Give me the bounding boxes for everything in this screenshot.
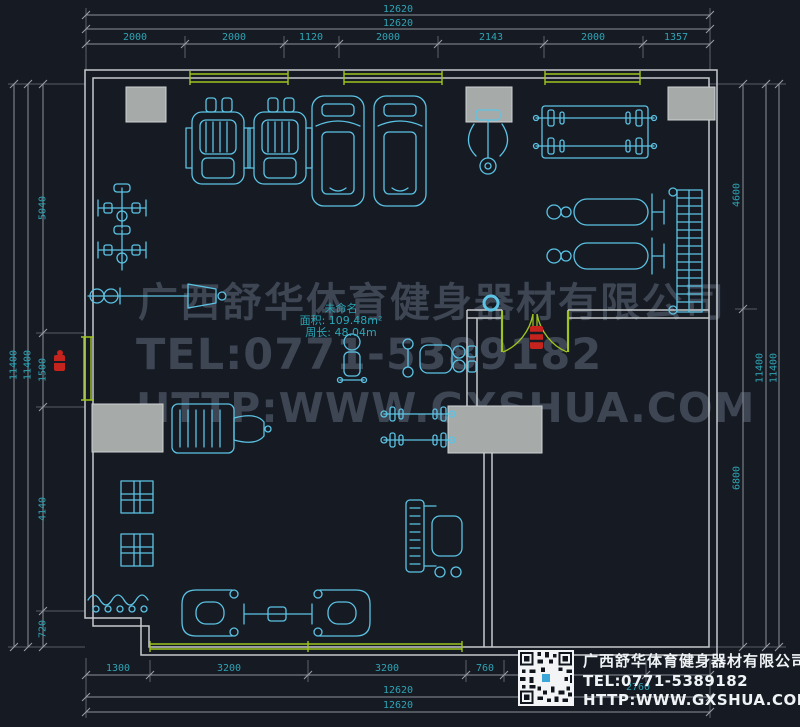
dim-right-total-outer: 11400 [769,338,780,398]
door-closer-icon [530,326,543,349]
cable-machine-icon [98,226,146,270]
dim-top-seg: 2000 [376,32,400,43]
window-symbol [121,534,153,566]
cad-canvas: 广西舒华体育健身器材有限公司 TEL:0771-5389182 HTTP:WWW… [0,0,800,727]
dim-left-total-outer: 11400 [9,335,20,395]
logo-card: 广西舒华体育健身器材有限公司 TEL:0771-5389182 HTTP:WWW… [518,650,800,709]
press-machine-icon [172,404,271,453]
treadmill-icon [374,96,426,206]
dumbbell-bench-icon [547,194,664,230]
dim-left-seg: 1500 [38,340,49,400]
dim-bottom-total-inner: 12620 [383,685,413,696]
massage-chair-icon [248,98,312,184]
dim-top-total-inner: 12620 [383,18,413,29]
dim-top-seg: 2000 [123,32,147,43]
dim-right-seg: 6800 [732,448,743,508]
dim-bottom-seg: 3200 [375,663,399,674]
curl-rack-icon [88,595,148,612]
cable-machine-icon [98,184,146,228]
dumbbell-bench-icon [547,238,664,274]
bench-icon [182,590,238,636]
column-circle-icon [484,296,498,310]
dim-bottom-seg: 3200 [217,663,241,674]
barbell-rack-icon [381,407,455,421]
squat-machine-icon [406,500,462,577]
dim-bottom-seg: 760 [476,663,494,674]
room-perimeter: 周长: 48.04m [300,327,383,339]
dim-bottom-seg: 1300 [106,663,130,674]
smith-machine-icon [534,106,657,158]
dim-top-seg: 2000 [581,32,605,43]
plate-rack-icon [669,188,702,314]
seated-row-icon [403,339,476,377]
dim-left-total-inner: 11400 [23,335,34,395]
qr-code-icon [518,650,574,706]
logo-tel: TEL:0771-5389182 [583,672,800,690]
dim-left-seg: 720 [38,599,49,659]
logo-company: 广西舒华体育健身器材有限公司 [583,650,800,671]
dim-top-seg: 1357 [664,32,688,43]
bench-press-icon [88,284,226,308]
treadmill-icon [312,96,364,206]
dim-left-seg: 4140 [38,479,49,539]
barbell-rack-icon [381,433,455,447]
dim-right-seg: 4600 [732,165,743,225]
dim-bottom-total-outer: 12620 [383,700,413,711]
room-label: 未命名 面积: 109.48m² 周长: 48.04m [300,303,383,339]
dim-top-seg: 2000 [222,32,246,43]
dim-top-seg: 1120 [299,32,323,43]
wall-alarm-icon [54,350,65,371]
window-symbol [121,481,153,513]
dim-right-total-inner: 11400 [755,338,766,398]
dim-top-seg: 2143 [479,32,503,43]
massage-chair-icon [186,98,250,184]
dim-top-total-outer: 12620 [383,4,413,15]
bench-icon [314,590,370,636]
alarm-markers [54,326,543,371]
kettlebell-stand-icon [338,334,367,383]
logo-url: HTTP:WWW.GXSHUA.COM [583,691,800,709]
floorplan-drawing [0,0,800,727]
barbell-icon [244,604,312,624]
dim-left-seg: 5040 [38,178,49,238]
